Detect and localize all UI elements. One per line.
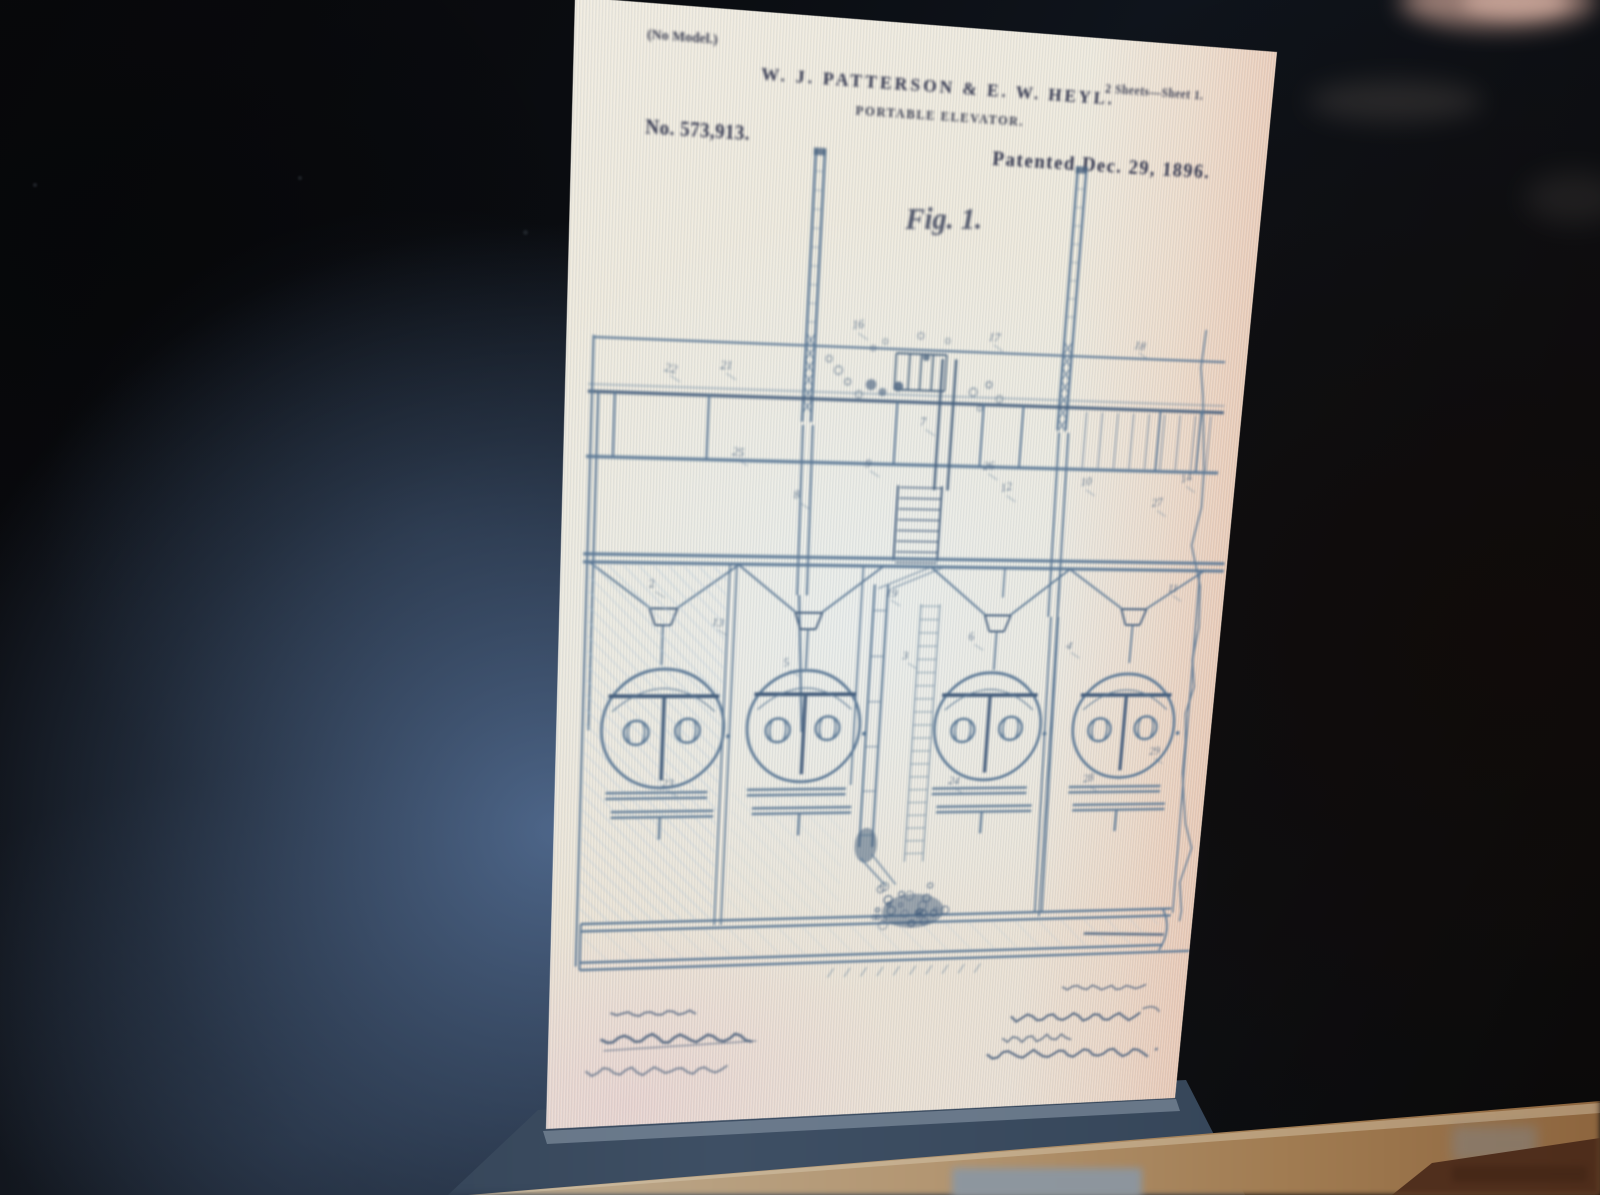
svg-text:22: 22 bbox=[664, 360, 679, 376]
svg-text:6: 6 bbox=[968, 630, 975, 643]
svg-text:12: 12 bbox=[1000, 480, 1013, 495]
svg-text:25: 25 bbox=[731, 445, 745, 460]
svg-text:7: 7 bbox=[920, 415, 927, 428]
svg-text:10: 10 bbox=[1081, 475, 1092, 489]
svg-text:21: 21 bbox=[720, 358, 732, 372]
svg-text:16: 16 bbox=[852, 317, 865, 332]
svg-text:27: 27 bbox=[1152, 495, 1164, 509]
svg-text:3: 3 bbox=[902, 649, 909, 661]
svg-text:24: 24 bbox=[948, 774, 961, 787]
svg-text:13: 13 bbox=[711, 615, 725, 629]
svg-text:2: 2 bbox=[648, 576, 656, 590]
svg-text:23: 23 bbox=[662, 777, 674, 790]
svg-text:19: 19 bbox=[885, 586, 898, 600]
svg-text:29: 29 bbox=[1149, 744, 1160, 757]
svg-text:8: 8 bbox=[793, 487, 801, 501]
svg-text:5: 5 bbox=[783, 656, 790, 669]
svg-text:26: 26 bbox=[983, 459, 995, 472]
svg-text:4: 4 bbox=[1065, 639, 1073, 652]
svg-text:17: 17 bbox=[988, 330, 1002, 344]
svg-text:14: 14 bbox=[1180, 471, 1192, 486]
svg-text:11: 11 bbox=[1168, 582, 1179, 594]
svg-text:28: 28 bbox=[1083, 771, 1095, 785]
svg-text:18: 18 bbox=[1133, 338, 1147, 353]
